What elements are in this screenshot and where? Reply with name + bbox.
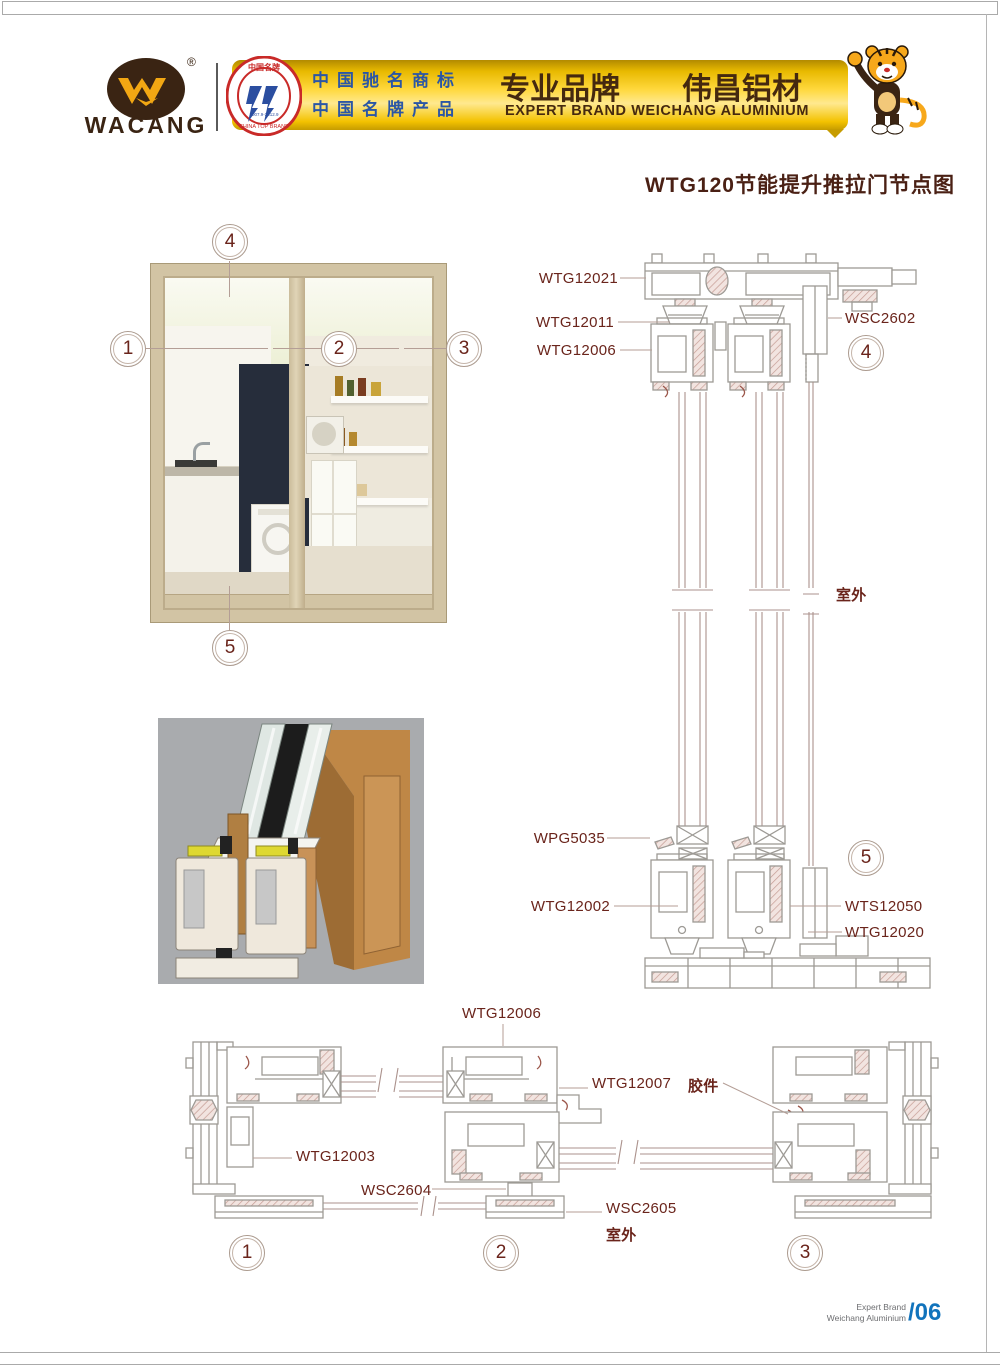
label-wts12050: WTS12050 bbox=[845, 898, 922, 915]
section-callout-2: 2 bbox=[483, 1235, 519, 1271]
detail-2-section bbox=[443, 1047, 601, 1182]
label-wpg5035: WPG5035 bbox=[534, 830, 605, 847]
detail-3-section bbox=[773, 1042, 938, 1194]
label-wtg12002: WTG12002 bbox=[531, 898, 610, 915]
label-outdoor-right: 室外 bbox=[836, 584, 867, 605]
leader-lines-vertical-section bbox=[607, 278, 842, 932]
label-wtg12007: WTG12007 bbox=[592, 1075, 671, 1092]
label-wsc2604: WSC2604 bbox=[361, 1182, 431, 1199]
footer-brand: Expert Brand Weichang Aluminium bbox=[827, 1302, 906, 1324]
catalog-page: ® WACANG 中国驰名商标 中国名牌产品 专业品牌 伟昌铝材 EXPERT … bbox=[0, 0, 1000, 1366]
label-wtg12006-top: WTG12006 bbox=[537, 342, 616, 359]
label-jiaojian: 胶件 bbox=[688, 1075, 719, 1096]
section-callout-4: 4 bbox=[848, 335, 884, 371]
section-callout-1: 1 bbox=[229, 1235, 265, 1271]
footer-page-number: /06 bbox=[908, 1299, 941, 1327]
label-wtg12011: WTG12011 bbox=[536, 314, 614, 331]
label-wsc2602: WSC2602 bbox=[845, 310, 915, 327]
detail-1-section bbox=[186, 1042, 341, 1194]
label-wtg12003: WTG12003 bbox=[296, 1148, 375, 1165]
section-callout-5: 5 bbox=[848, 840, 884, 876]
label-outdoor-bottom: 室外 bbox=[606, 1224, 637, 1245]
label-wtg12021: WTG12021 bbox=[539, 270, 618, 287]
label-wtg12020: WTG12020 bbox=[845, 924, 924, 941]
section-callout-3: 3 bbox=[787, 1235, 823, 1271]
footer-brand-line2: Weichang Aluminium bbox=[827, 1313, 906, 1324]
footer-brand-line1: Expert Brand bbox=[827, 1302, 906, 1313]
technical-sections-drawing bbox=[0, 0, 1000, 1366]
glass-lines-vertical bbox=[672, 382, 819, 866]
bottom-track bbox=[215, 1183, 931, 1218]
label-wtg12006-bottom: WTG12006 bbox=[462, 1005, 541, 1022]
label-wsc2605: WSC2605 bbox=[606, 1200, 676, 1217]
